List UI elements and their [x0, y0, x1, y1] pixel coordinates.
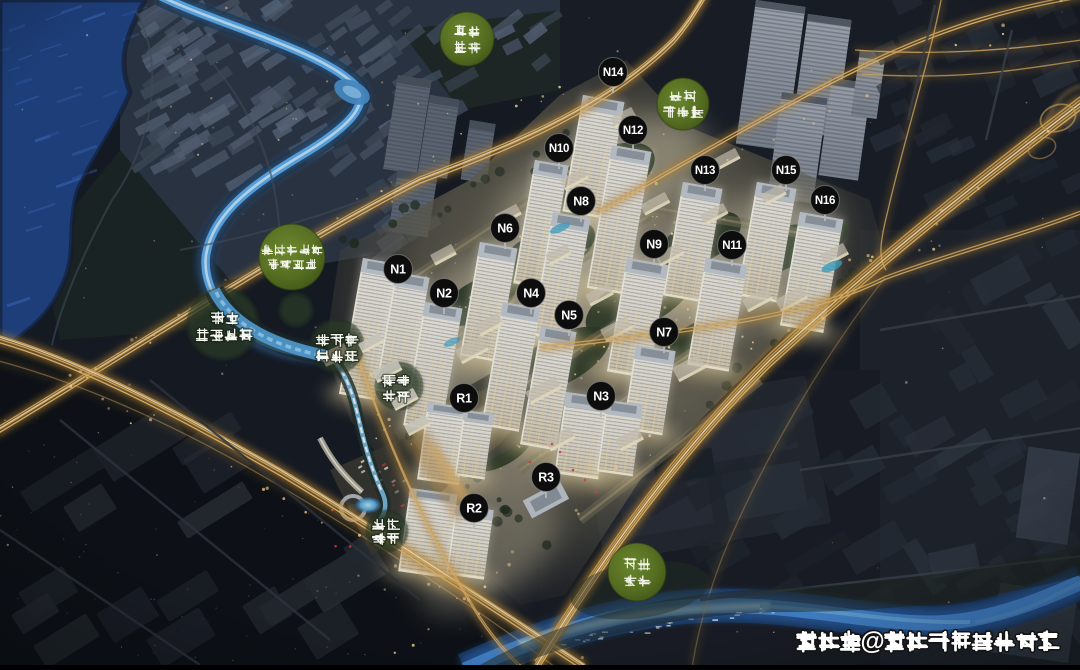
svg-text:N1: N1 [390, 263, 406, 277]
svg-text:N8: N8 [573, 195, 589, 209]
svg-text:R1: R1 [456, 392, 472, 406]
svg-text:N9: N9 [646, 238, 662, 252]
svg-text:R3: R3 [538, 471, 554, 485]
svg-text:N5: N5 [561, 309, 577, 323]
svg-text:N4: N4 [523, 287, 539, 301]
svg-text:N16: N16 [815, 195, 835, 207]
svg-text:N6: N6 [497, 222, 513, 236]
svg-text:@: @ [860, 628, 884, 656]
svg-text:N15: N15 [776, 165, 797, 177]
svg-text:N12: N12 [623, 125, 643, 137]
svg-text:N7: N7 [656, 326, 672, 340]
svg-text:N13: N13 [695, 165, 715, 177]
svg-text:N14: N14 [603, 67, 624, 79]
svg-text:R2: R2 [466, 502, 482, 516]
svg-text:N11: N11 [722, 240, 742, 252]
svg-text:N10: N10 [549, 143, 569, 155]
svg-text:N2: N2 [436, 287, 452, 301]
svg-text:N3: N3 [593, 390, 609, 404]
